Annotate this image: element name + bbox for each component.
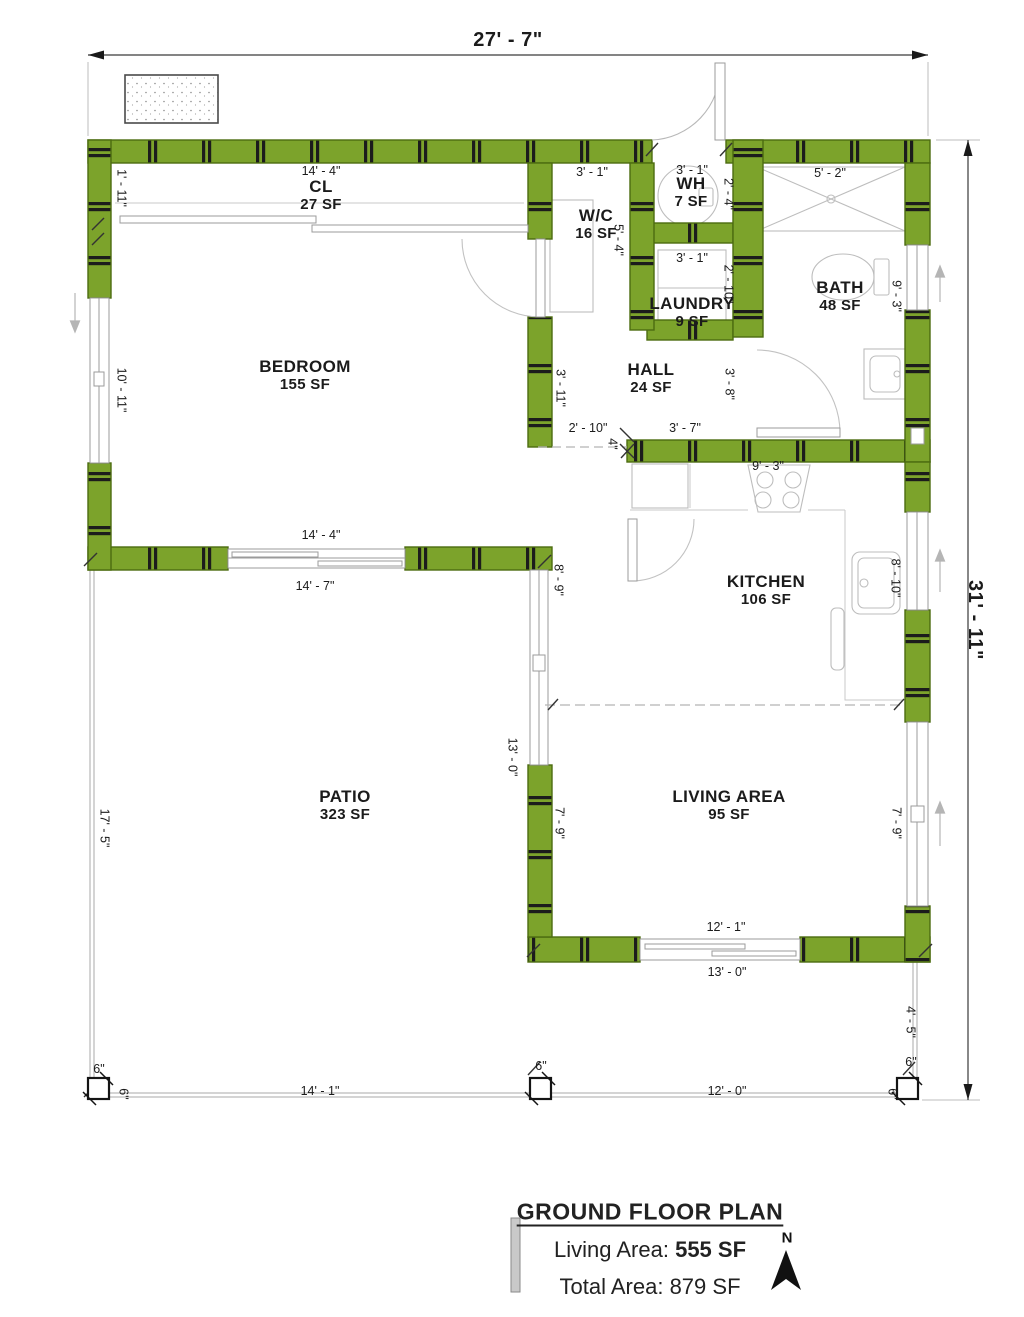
floor-plan-page: 27' - 7" 31' - 11" CL 27 SF BEDROOM 155 … (0, 0, 1024, 1317)
living-area-label: Living Area: (554, 1237, 669, 1262)
room-name: KITCHEN (727, 573, 805, 591)
dim-living-door: 12' - 1" (707, 921, 746, 934)
dashed-lines (538, 447, 905, 705)
dim-wc-width: 3' - 1" (576, 166, 608, 179)
scale-bar (511, 1218, 520, 1292)
dim-kitchen-right: 8' - 10" (889, 559, 902, 598)
room-label-hall: HALL 24 SF (628, 361, 675, 397)
dim-hall-bottom-left: 2' - 10" (569, 422, 608, 435)
dim-bath-width: 5' - 2" (814, 167, 846, 180)
room-label-bedroom: BEDROOM 155 SF (259, 358, 351, 394)
dim-living-right: 7' - 9" (890, 807, 903, 839)
dim-overall-height: 31' - 11" (965, 580, 985, 660)
dim-patio-top: 14' - 7" (296, 580, 335, 593)
room-label-kitchen: KITCHEN 106 SF (727, 573, 805, 609)
room-area: 7 SF (675, 193, 708, 211)
room-label-patio: PATIO 323 SF (319, 788, 370, 824)
total-area-value: 879 SF (670, 1274, 741, 1299)
dim-wh-height: 2' - 4" (722, 178, 735, 210)
room-name: PATIO (319, 788, 370, 806)
dim-bedroom-height: 10' - 11" (115, 368, 128, 413)
dim-kitchen-left: 8' - 9" (552, 564, 565, 596)
room-name: CL (300, 178, 342, 196)
dim-patio-left: 17' - 5" (98, 809, 111, 848)
room-area: 27 SF (300, 196, 342, 214)
dim-hall-left: 3' - 11" (554, 369, 567, 407)
dim-wall-thickness: 4" (606, 438, 619, 449)
dim-laundry-width: 3' - 1" (676, 252, 708, 265)
floor-plan-drawing (0, 0, 1024, 1317)
dim-laundry-height: 2' - 10" (722, 265, 735, 304)
dim-wh-width: 3' - 1" (676, 164, 708, 177)
walls (88, 140, 930, 962)
dim-deck-bottom-right: 12' - 0" (708, 1085, 747, 1098)
dim-post-br: 6" (905, 1056, 916, 1069)
living-area-value: 555 SF (675, 1237, 746, 1262)
room-name: WH (675, 175, 708, 193)
room-area: 48 SF (816, 297, 864, 315)
room-label-wh: WH 7 SF (675, 175, 708, 211)
dim-cl-depth: 1' - 11" (115, 169, 128, 207)
dim-post-br-side: 6" (886, 1088, 899, 1099)
dim-west-height: 13' - 0" (506, 738, 519, 777)
dim-kitchen-width: 9' - 3" (752, 460, 784, 473)
room-area: 95 SF (672, 806, 785, 824)
dim-living-bottom: 13' - 0" (708, 966, 747, 979)
dim-post-bl: 6" (93, 1063, 104, 1076)
room-label-bath: BATH 48 SF (816, 279, 864, 315)
dim-post-bl-side: 6" (117, 1088, 130, 1099)
room-label-living-area: LIVING AREA 95 SF (672, 788, 785, 824)
room-name: BATH (816, 279, 864, 297)
room-area: 106 SF (727, 591, 805, 609)
plan-title: GROUND FLOOR PLAN (517, 1199, 784, 1226)
dim-wc-height: 5' - 4" (612, 224, 625, 256)
room-name: BEDROOM (259, 358, 351, 376)
room-area: 9 SF (649, 313, 734, 331)
room-label-cl: CL 27 SF (300, 178, 342, 214)
total-area-label: Total Area: (559, 1274, 663, 1299)
legend-texture-swatch (125, 75, 218, 123)
north-arrow-icon (771, 1250, 801, 1290)
deck-posts (83, 1072, 922, 1105)
patio-outline (90, 570, 917, 1097)
living-area-line: Living Area: 555 SF (554, 1237, 746, 1263)
dim-deck-bottom-left: 14' - 1" (301, 1085, 340, 1098)
room-name: W/C (575, 207, 617, 225)
dim-living-left: 7' - 9" (553, 807, 566, 839)
dim-bath-height: 9' - 3" (890, 280, 903, 312)
total-area-line: Total Area: 879 SF (559, 1274, 740, 1300)
dim-hall-right: 3' - 8" (723, 368, 736, 400)
dim-bedroom-width: 14' - 4" (302, 529, 341, 542)
dim-overall-width: 27' - 7" (473, 30, 542, 50)
dim-post-mid: 6" (535, 1060, 546, 1073)
dim-hall-bottom-right: 3' - 7" (669, 422, 701, 435)
room-area: 155 SF (259, 376, 351, 394)
dim-deck-right: 4' - 5" (904, 1006, 917, 1038)
room-name: HALL (628, 361, 675, 379)
north-label: N (782, 1230, 793, 1247)
dim-cl-width: 14' - 4" (302, 165, 341, 178)
room-area: 323 SF (319, 806, 370, 824)
room-name: LIVING AREA (672, 788, 785, 806)
room-area: 24 SF (628, 379, 675, 397)
